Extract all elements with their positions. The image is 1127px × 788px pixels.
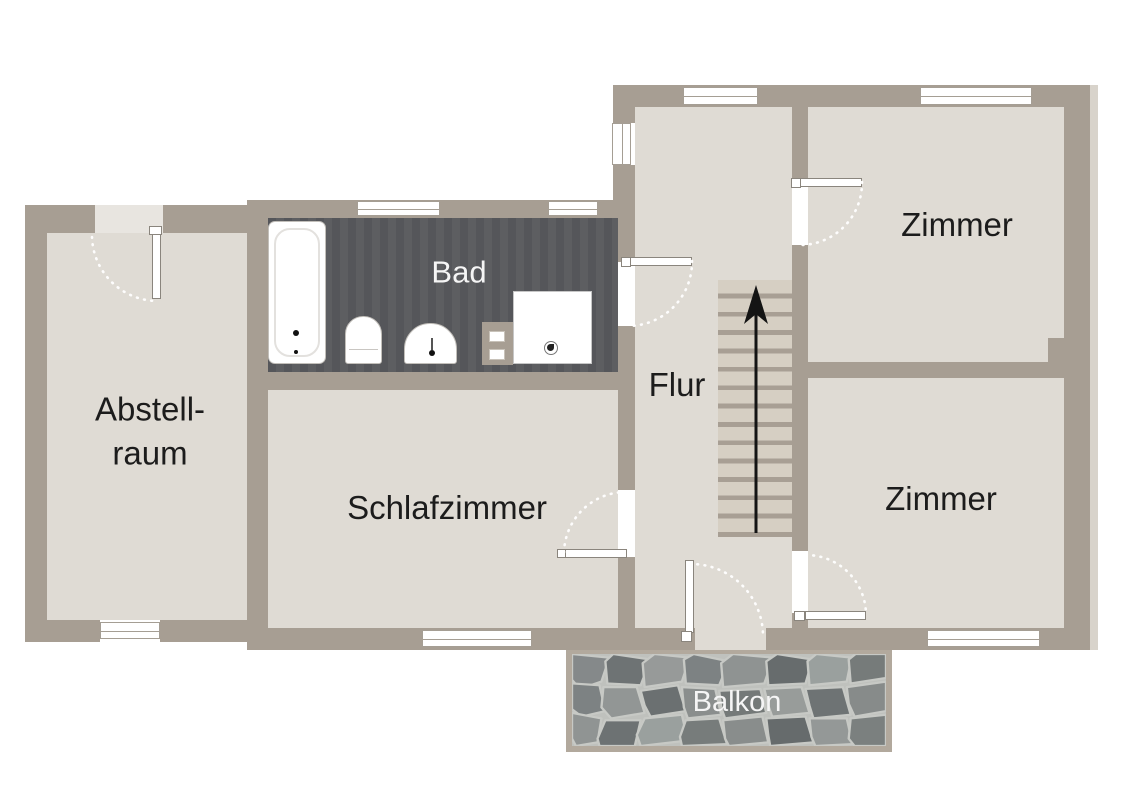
bathroom-niche-wall [482, 322, 513, 365]
bathtub-faucet [293, 330, 299, 336]
balkon-door-threshold [695, 628, 766, 650]
sink-faucet [429, 350, 435, 356]
floor-plan: Abstell- raum Bad Schlafzimmer Flur Zimm… [0, 0, 1127, 788]
label-flur: Flur [649, 363, 706, 407]
wall-right-section-left-lower [613, 165, 635, 218]
door-zimmer-bottom-hinge [794, 611, 805, 621]
wall-right-section-left-pillar [613, 85, 635, 123]
door-bad-leaf [630, 257, 692, 266]
window-zimmer-top [920, 87, 1032, 105]
shower-icon [513, 291, 592, 364]
wall-right-exterior [1064, 85, 1090, 650]
door-zimmer-bottom-leaf [805, 611, 866, 620]
wall-bad-schlafzimmer-divider [268, 372, 635, 390]
wall-flur-zimmer-top [792, 107, 808, 183]
wall-abstellraum-left [25, 205, 47, 642]
window-bad-1 [357, 201, 440, 216]
door-schlafzimmer-cap [557, 549, 566, 558]
label-bad: Bad [431, 253, 486, 294]
wall-schlafzimmer-right-upper [618, 390, 635, 490]
window-bad-2 [548, 201, 598, 216]
door-abstellraum-leaf [152, 233, 161, 299]
wall-zimmer-divider [808, 362, 1064, 378]
sink-tap-line [431, 338, 433, 350]
right-exterior-shadow [1090, 85, 1098, 650]
wall-schlafzimmer-right-lower [618, 557, 635, 628]
window-schlafzimmer-bottom [422, 630, 532, 647]
label-abstellraum: Abstell- raum [95, 387, 205, 474]
door-bad-hinge [621, 257, 631, 267]
label-abstellraum-line2: raum [112, 434, 187, 471]
shower-drain-cap [547, 344, 554, 351]
label-schlafzimmer: Schlafzimmer [347, 486, 547, 530]
niche-shelf-1 [489, 331, 505, 342]
bathtub-icon [268, 221, 326, 364]
wall-shared-left [247, 200, 268, 650]
door-balkon-leaf [685, 560, 694, 633]
wall-flur-zimmer-mid [792, 245, 808, 551]
door-zimmer-top-leaf [800, 178, 862, 187]
door-balkon-hinge [681, 631, 692, 642]
wall-abstellraum-bottom-left [25, 620, 100, 642]
door-schlafzimmer-leaf [563, 549, 627, 558]
bathtub-drain [294, 350, 298, 354]
bathtub-rim [274, 228, 320, 357]
door-zimmer-top-hinge [791, 178, 801, 188]
shower-drain [544, 341, 558, 355]
label-abstellraum-line1: Abstell- [95, 390, 205, 427]
wall-zimmer-divider-notch [1048, 338, 1064, 362]
window-zimmer-bottom [927, 630, 1040, 647]
label-balkon: Balkon [693, 683, 782, 721]
door-abstellraum-hinge [149, 226, 162, 235]
label-zimmer-bottom: Zimmer [885, 477, 997, 521]
window-abstellraum-bottom [100, 622, 160, 639]
niche-shelf-2 [489, 349, 505, 360]
stairs [718, 280, 792, 537]
window-flur-top [683, 87, 758, 105]
toilet-icon [345, 316, 382, 364]
label-zimmer-top: Zimmer [901, 203, 1013, 247]
toilet-seat-line [349, 349, 378, 350]
window-flur-left [612, 123, 631, 165]
